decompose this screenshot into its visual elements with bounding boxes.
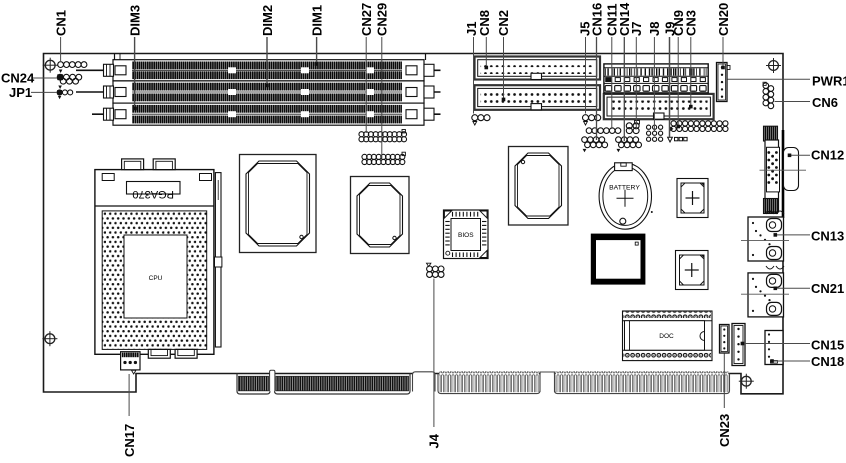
svg-text:CN15: CN15 [811,338,844,353]
svg-text:PGA370: PGA370 [132,188,174,200]
svg-text:CN18: CN18 [811,354,844,369]
svg-text:BIOS: BIOS [458,232,474,239]
svg-text:J7: J7 [629,22,644,36]
svg-text:CN6: CN6 [812,95,838,110]
svg-text:CN21: CN21 [811,281,844,296]
svg-text:CN8: CN8 [477,10,492,36]
svg-text:CN20: CN20 [716,3,731,36]
svg-text:CN27: CN27 [359,3,374,36]
svg-text:CN17: CN17 [122,424,137,457]
svg-text:DOC: DOC [659,333,674,340]
svg-text:DIM3: DIM3 [127,5,142,36]
svg-text:CN24: CN24 [1,71,35,86]
svg-text:DIM1: DIM1 [309,5,324,36]
svg-text:CPU: CPU [149,275,163,282]
svg-text:PWR1: PWR1 [812,73,846,88]
svg-text:CN23: CN23 [717,414,732,447]
svg-text:CN2: CN2 [496,10,511,36]
svg-text:CN12: CN12 [811,147,844,162]
svg-text:CN1: CN1 [53,10,68,36]
svg-text:CN13: CN13 [811,229,844,244]
svg-text:J4: J4 [427,433,442,448]
svg-text:CN3: CN3 [684,10,699,36]
svg-text:DIM2: DIM2 [260,5,275,36]
svg-text:JP1: JP1 [9,85,32,100]
svg-text:CN29: CN29 [375,3,390,36]
svg-text:J8: J8 [647,22,662,36]
svg-text:CN16: CN16 [589,3,604,36]
